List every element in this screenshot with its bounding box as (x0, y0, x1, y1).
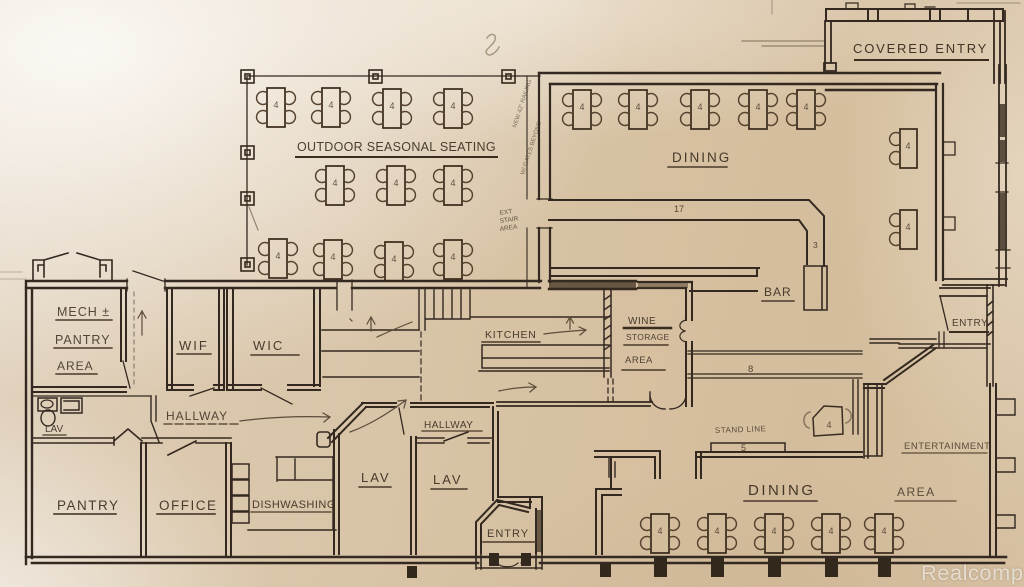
svg-text:AREA: AREA (57, 359, 94, 373)
svg-text:3: 3 (813, 240, 818, 250)
svg-text:4: 4 (828, 526, 833, 536)
svg-text:HALLWAY: HALLWAY (424, 420, 473, 431)
svg-text:4: 4 (771, 526, 776, 536)
svg-text:4: 4 (330, 252, 335, 262)
svg-text:4: 4 (905, 222, 910, 232)
svg-text:MECH ±: MECH ± (57, 305, 110, 319)
svg-text:LAV: LAV (433, 472, 463, 487)
svg-text:WIC: WIC (253, 338, 284, 353)
svg-text:DINING: DINING (748, 482, 816, 499)
svg-text:4: 4 (826, 420, 831, 430)
svg-text:4: 4 (275, 251, 280, 261)
svg-text:DISHWASHING: DISHWASHING (252, 499, 336, 511)
svg-text:4: 4 (450, 101, 455, 111)
svg-text:4: 4 (389, 101, 394, 111)
svg-text:4: 4 (714, 526, 719, 536)
svg-text:17: 17 (674, 204, 684, 214)
svg-text:HALLWAY: HALLWAY (166, 409, 228, 423)
svg-text:4: 4 (635, 102, 640, 112)
svg-text:LAV: LAV (45, 424, 63, 435)
svg-text:4: 4 (450, 178, 455, 188)
svg-text:4: 4 (450, 252, 455, 262)
svg-text:4: 4 (803, 102, 808, 112)
svg-text:WINE: WINE (628, 316, 656, 327)
svg-text:OUTDOOR SEASONAL SEATING: OUTDOOR SEASONAL SEATING (297, 140, 496, 154)
svg-text:LAV: LAV (361, 470, 391, 485)
svg-text:ENTRY: ENTRY (487, 528, 529, 540)
svg-text:KITCHEN: KITCHEN (485, 329, 537, 341)
svg-text:4: 4 (755, 102, 760, 112)
svg-text:4: 4 (332, 178, 337, 188)
svg-text:COVERED ENTRY: COVERED ENTRY (853, 41, 988, 56)
svg-text:4: 4 (881, 526, 886, 536)
svg-text:4: 4 (273, 100, 278, 110)
svg-text:AREA: AREA (897, 485, 936, 499)
svg-text:WIF: WIF (179, 338, 209, 353)
svg-text:BAR: BAR (764, 285, 792, 299)
svg-text:OFFICE: OFFICE (159, 498, 218, 513)
svg-text:4: 4 (905, 141, 910, 151)
svg-text:ENTERTAINMENT: ENTERTAINMENT (904, 441, 990, 452)
svg-text:ENTRY: ENTRY (952, 318, 988, 329)
svg-text:STORAGE: STORAGE (626, 332, 670, 342)
svg-text:4: 4 (328, 100, 333, 110)
svg-text:PANTRY: PANTRY (57, 498, 120, 513)
svg-text:4: 4 (657, 526, 662, 536)
svg-text:4: 4 (697, 102, 702, 112)
svg-text:4: 4 (391, 254, 396, 264)
svg-text:STAND LINE: STAND LINE (715, 424, 767, 435)
svg-text:4: 4 (579, 102, 584, 112)
svg-text:PANTRY: PANTRY (55, 333, 111, 347)
svg-text:NEW 42" RAILING: NEW 42" RAILING (512, 79, 533, 129)
svg-text:4: 4 (393, 178, 398, 188)
svg-text:8: 8 (748, 364, 753, 375)
svg-text:DINING: DINING (672, 150, 731, 165)
svg-text:AREA: AREA (499, 223, 518, 232)
svg-text:AREA: AREA (625, 355, 653, 366)
svg-text:5: 5 (741, 443, 746, 453)
